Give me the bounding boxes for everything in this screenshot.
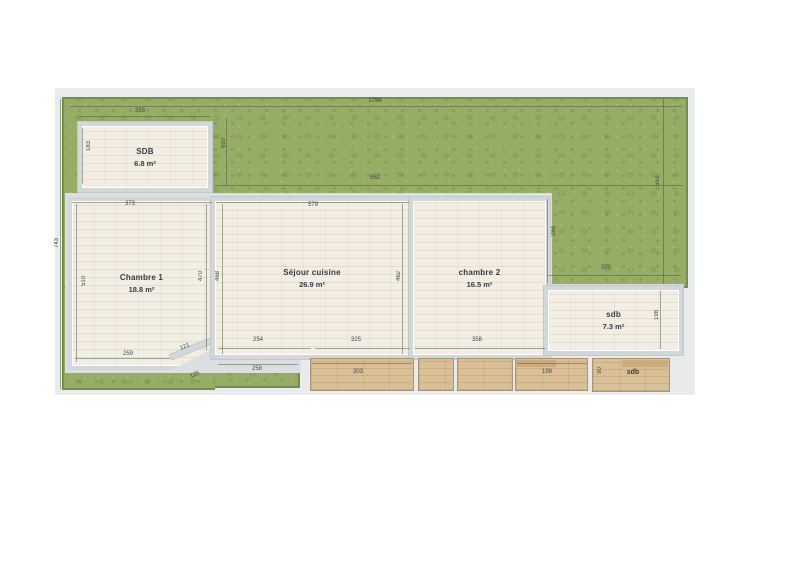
dim-sdb-left: 183 [85,141,93,151]
dim-chambre1-bottom: 259 [108,350,148,358]
dim-sejour-right: 462 [395,271,403,281]
dim-deck-198: 198 [527,368,567,376]
dim-chambre1-top: 373 [110,200,150,208]
dim-line-garden-right-v [547,199,548,284]
room-sdb-area: 6.8 m² [134,159,156,168]
dim-line-chambre1-right [206,204,207,350]
dim-sdb2-right: 198 [653,310,661,320]
room-sdb[interactable]: SDB 6.8 m² [78,122,212,192]
dim-line-sejour-bottom-l [218,348,311,349]
dim-sejour-left: 468 [214,271,222,281]
room-sdb-2-area: 7.3 m² [603,322,625,331]
floorplan-page: SDB 6.8 m² Chambre 1 18.8 m² Séjour cuis… [0,0,800,566]
deck-segment-3[interactable] [457,358,513,391]
room-sejour-cuisine[interactable]: Séjour cuisine 26.9 m² [211,197,413,359]
dim-terrain-top: 1796 [355,97,395,105]
dim-line-garden-left-v [226,118,227,185]
dim-garden-right-v: 284 [550,226,558,236]
dim-sejour-top: 579 [293,201,333,209]
deck-sdb-label: sdb [613,369,653,376]
room-sejour-label: Séjour cuisine [283,268,340,277]
dim-terrace-green: 258 [237,365,277,373]
room-chambre-1-label: Chambre 1 [120,273,163,282]
dim-line-sejour-bottom-r [315,348,410,349]
deck-plank-accent [622,360,668,367]
dim-garden-v-left: 693 [220,138,228,148]
dim-chambre1-left: 510 [80,276,88,286]
dim-line-deck-198 [517,363,587,364]
room-sejour-area: 26.9 m² [299,280,325,289]
dim-line-chambre1-left [76,204,77,362]
dim-garden-right-h: 370 [586,264,626,272]
room-chambre-2-label: chambre 2 [459,268,501,277]
dim-line-sdb-top [78,116,211,117]
floorplan-canvas: SDB 6.8 m² Chambre 1 18.8 m² Séjour cuis… [55,88,695,395]
dim-line-terrain-top [70,106,682,107]
room-chambre-1-area: 18.8 m² [129,285,155,294]
room-chambre-2[interactable]: chambre 2 16.5 m² [409,197,550,359]
dim-chambre1-right: 470 [197,271,205,281]
dim-line-garden-mid [215,185,683,186]
dim-line-garden-right-h [548,275,681,276]
dim-garden-mid: 952 [355,174,395,182]
room-chambre-2-area: 16.5 m² [467,280,493,289]
dim-line-chambre2-bottom [415,348,545,349]
deck-segment-2[interactable] [418,358,454,391]
dim-sejour-bottom-r: 325 [336,336,376,344]
dim-line-chambre1-bottom [75,358,170,359]
dim-deck-sdb-v: 90 [596,367,604,374]
dim-line-sejour-left [222,204,223,354]
dim-terrain-right: 553 [654,176,662,186]
dim-chambre2-bottom: 358 [457,336,497,344]
dim-line-terrain-right [663,99,664,284]
dim-terrain-left: 743 [53,238,61,248]
room-sdb-2[interactable]: sdb 7.3 m² [544,286,683,355]
room-sdb-label: SDB [136,147,154,156]
dim-sdb-top: 393 [120,107,160,115]
room-sdb-2-label: sdb [606,310,621,319]
dim-line-deck-303 [312,363,412,364]
dim-deck-303: 303 [338,368,378,376]
dim-line-sdb-left [82,128,83,184]
dim-sejour-bottom-l: 254 [238,336,278,344]
